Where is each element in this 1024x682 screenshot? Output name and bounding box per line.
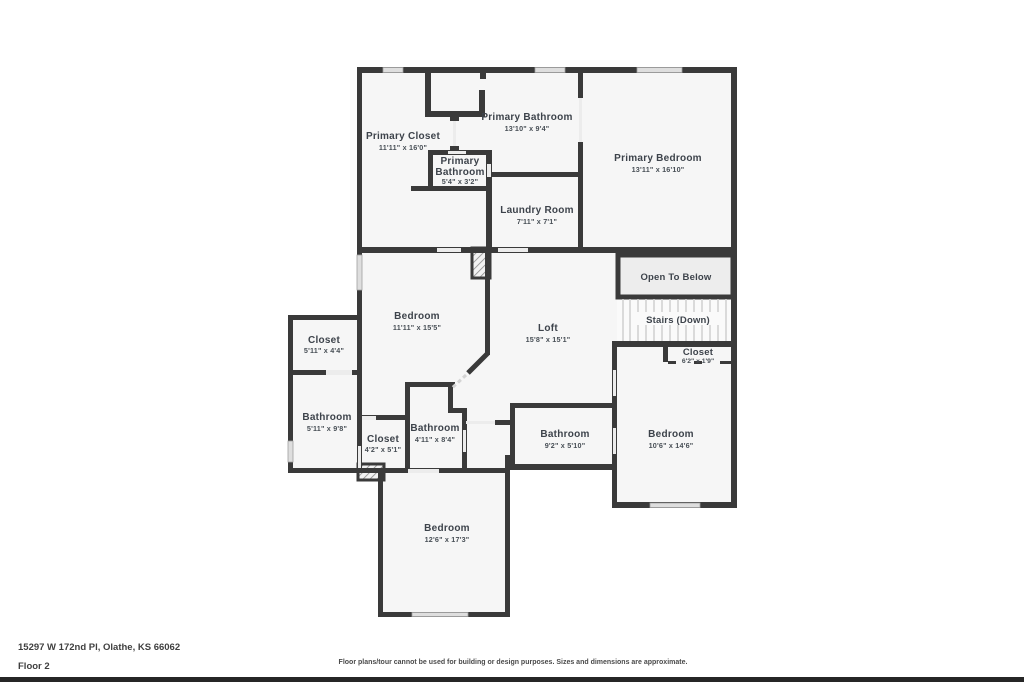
wall bbox=[480, 67, 486, 79]
wall bbox=[578, 67, 583, 98]
door-opening bbox=[613, 428, 616, 454]
room-label-bedroom-bottom: Bedroom 12'6" x 17'3" bbox=[424, 523, 470, 544]
wall bbox=[450, 146, 459, 150]
wall bbox=[428, 150, 433, 191]
svg-text:12'6" x 17'3": 12'6" x 17'3" bbox=[425, 535, 470, 544]
wall bbox=[288, 315, 362, 320]
svg-text:Open To Below: Open To Below bbox=[640, 272, 711, 283]
svg-text:10'6" x 14'6": 10'6" x 14'6" bbox=[649, 441, 694, 450]
wall bbox=[510, 403, 515, 470]
wall bbox=[450, 117, 459, 121]
wall bbox=[425, 70, 431, 117]
svg-text:13'10" x 9'4": 13'10" x 9'4" bbox=[505, 124, 550, 133]
wall bbox=[510, 403, 617, 408]
room-label-closet-hall: Closet 6'2" x 1'9" bbox=[682, 347, 714, 365]
wall bbox=[378, 468, 383, 617]
room-label-bedroom-right: Bedroom 10'6" x 14'6" bbox=[648, 429, 694, 450]
svg-text:Loft: Loft bbox=[538, 323, 558, 334]
window bbox=[383, 68, 403, 73]
wall bbox=[485, 253, 490, 355]
window bbox=[357, 255, 362, 290]
window bbox=[637, 68, 682, 73]
svg-text:Closet: Closet bbox=[308, 335, 340, 346]
wall bbox=[495, 420, 511, 425]
svg-text:Laundry Room: Laundry Room bbox=[500, 205, 574, 216]
room-label-bathroom-left: Bathroom 5'11" x 9'8" bbox=[302, 412, 351, 433]
svg-text:Bedroom: Bedroom bbox=[424, 523, 470, 534]
wall bbox=[505, 455, 510, 617]
wall bbox=[357, 247, 737, 253]
svg-text:5'11" x 4'4": 5'11" x 4'4" bbox=[304, 346, 344, 355]
svg-text:Bedroom: Bedroom bbox=[394, 311, 440, 322]
svg-text:Primary Closet: Primary Closet bbox=[366, 131, 441, 142]
wall bbox=[612, 341, 737, 347]
svg-text:11'11" x 15'5": 11'11" x 15'5" bbox=[393, 323, 441, 332]
floor-plan-svg: Primary Closet 11'11" x 16'0" Primary Ba… bbox=[0, 0, 1024, 682]
svg-text:Primary: Primary bbox=[441, 156, 480, 167]
wall bbox=[405, 382, 410, 468]
svg-text:6'2" x 1'9": 6'2" x 1'9" bbox=[682, 358, 714, 365]
wall bbox=[411, 186, 428, 191]
door-opening bbox=[362, 416, 376, 420]
svg-text:Closet: Closet bbox=[683, 347, 714, 358]
svg-text:Primary Bedroom: Primary Bedroom bbox=[614, 153, 702, 164]
svg-text:7'11" x 7'1": 7'11" x 7'1" bbox=[517, 217, 557, 226]
wall bbox=[425, 111, 485, 117]
door-opening bbox=[487, 164, 491, 177]
door-opening bbox=[448, 151, 466, 154]
door-opening bbox=[453, 121, 456, 146]
window bbox=[535, 68, 565, 73]
window bbox=[412, 613, 468, 617]
svg-text:9'2" x 5'10": 9'2" x 5'10" bbox=[545, 441, 586, 450]
door-opening bbox=[466, 421, 495, 424]
svg-text:Primary Bathroom: Primary Bathroom bbox=[481, 112, 572, 123]
svg-text:4'2" x 5'1": 4'2" x 5'1" bbox=[365, 445, 401, 454]
door-opening bbox=[498, 248, 528, 252]
svg-text:15'8" x 15'1": 15'8" x 15'1" bbox=[526, 335, 571, 344]
footer: 15297 W 172nd Pl, Olathe, KS 66062 Floor… bbox=[0, 642, 1024, 682]
svg-text:Bedroom: Bedroom bbox=[648, 429, 694, 440]
room-label-bathroom-right: Bathroom 9'2" x 5'10" bbox=[540, 429, 589, 450]
svg-text:5'11" x 9'8": 5'11" x 9'8" bbox=[307, 424, 347, 433]
footer-bar bbox=[0, 677, 1024, 682]
svg-text:Closet: Closet bbox=[367, 434, 399, 445]
window bbox=[288, 441, 293, 462]
door-opening bbox=[358, 446, 361, 468]
door-opening bbox=[463, 430, 466, 452]
room-label-open-to-below: Open To Below bbox=[640, 272, 711, 283]
svg-text:Bathroom: Bathroom bbox=[302, 412, 351, 423]
svg-text:Bathroom: Bathroom bbox=[540, 429, 589, 440]
door-opening bbox=[579, 98, 582, 142]
disclaimer-text: Floor plans/tour cannot be used for buil… bbox=[339, 659, 688, 666]
svg-text:13'11" x 16'10": 13'11" x 16'10" bbox=[632, 165, 685, 174]
wall bbox=[510, 464, 617, 470]
svg-text:4'11" x 8'4": 4'11" x 8'4" bbox=[415, 435, 455, 444]
room-label-closet-mid: Closet 4'2" x 5'1" bbox=[365, 434, 401, 454]
wall bbox=[428, 186, 492, 191]
wall bbox=[578, 142, 583, 253]
room-label-bathroom-mid: Bathroom 4'11" x 8'4" bbox=[410, 423, 459, 444]
wall bbox=[488, 172, 583, 177]
door-opening bbox=[326, 370, 352, 375]
address-text: 15297 W 172nd Pl, Olathe, KS 66062 bbox=[18, 642, 180, 653]
door-opening bbox=[613, 370, 616, 396]
room-label-primary-bathroom-small: Primary Bathroom 5'4" x 3'2" bbox=[435, 156, 484, 186]
door-opening bbox=[437, 248, 461, 252]
wall bbox=[663, 347, 668, 362]
svg-text:5'4" x 3'2": 5'4" x 3'2" bbox=[442, 177, 478, 186]
wall bbox=[288, 468, 510, 473]
svg-text:11'11" x 16'0": 11'11" x 16'0" bbox=[379, 143, 427, 152]
window bbox=[650, 503, 700, 508]
room-label-closet-left: Closet 5'11" x 4'4" bbox=[304, 335, 344, 355]
room-label-bedroom-upper: Bedroom 11'11" x 15'5" bbox=[393, 311, 441, 332]
wall bbox=[405, 382, 455, 387]
door-opening bbox=[408, 469, 439, 473]
svg-text:Stairs (Down): Stairs (Down) bbox=[646, 315, 710, 326]
floor-label: Floor 2 bbox=[18, 661, 50, 672]
wall bbox=[612, 341, 617, 508]
wall bbox=[357, 67, 362, 253]
room-label-stairs: Stairs (Down) bbox=[646, 315, 710, 326]
svg-text:Bathroom: Bathroom bbox=[410, 423, 459, 434]
floor-plan-page: Primary Closet 11'11" x 16'0" Primary Ba… bbox=[0, 0, 1024, 682]
